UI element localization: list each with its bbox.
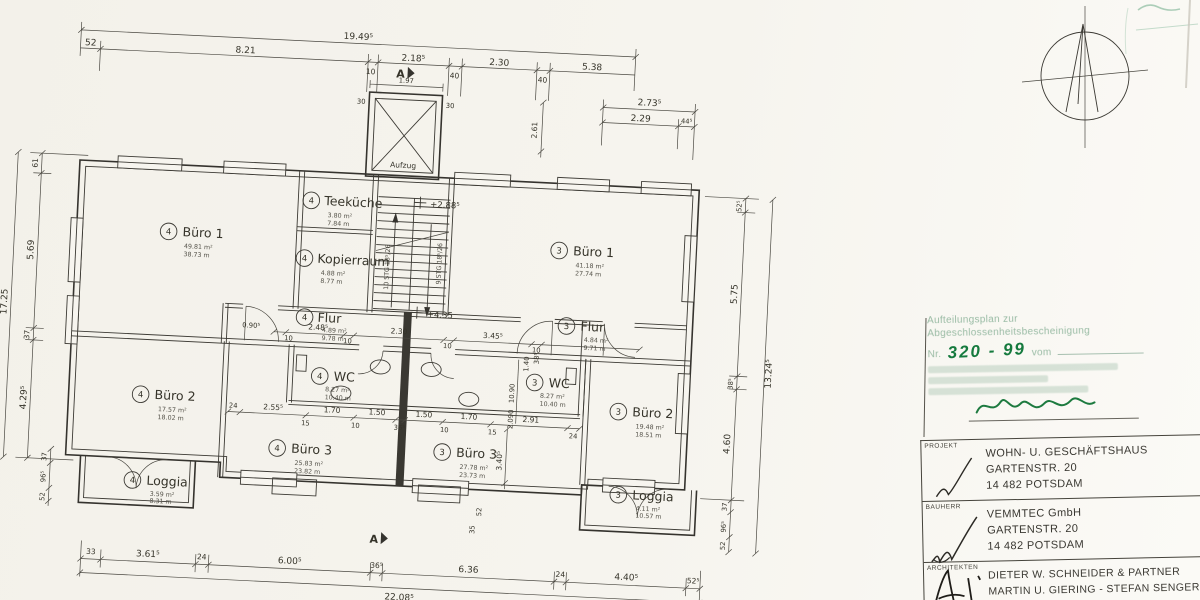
dim-label: 37 <box>22 329 31 339</box>
floor-plan: 1.97 30 30 Aufzug <box>0 16 790 600</box>
room-label-buero2-left: 4 Büro 2 17.57 m² 18.02 m <box>131 386 196 423</box>
bauherr-line: 14 482 POTSDAM <box>987 534 1200 555</box>
room-unit: 4 <box>129 476 135 486</box>
dim-label: 2.91 <box>522 415 539 425</box>
dim-chain-top-right: 2.73⁵ 2.29 44⁵ 2.61 <box>529 93 699 165</box>
dim-label: 36⁵ <box>393 424 405 433</box>
dim-label: 37 <box>721 502 729 511</box>
title-block-projekt: PROJEKT WOHN- U. GESCHÄFTSHAUS GARTENSTR… <box>921 435 1200 502</box>
title-block: PROJEKT WOHN- U. GESCHÄFTSHAUS GARTENSTR… <box>920 434 1200 600</box>
stamp-signature <box>970 390 1101 422</box>
title-block-frame <box>924 318 926 437</box>
dim-label: 52 <box>475 507 483 516</box>
dim-label: 5.75 <box>730 284 741 305</box>
room-name: WC <box>548 375 570 391</box>
room-unit: 3 <box>439 448 445 458</box>
title-block-bauherr: BAUHERR VEMMTEC GmbH GARTENSTR. 20 14 48… <box>923 496 1200 563</box>
dim-label: 4.40⁵ <box>614 573 638 584</box>
room-perimeter: 23.82 m <box>294 468 320 476</box>
stamp-date-line <box>1057 343 1143 355</box>
dim-label: 15 <box>488 428 497 436</box>
room-name: Büro 3 <box>291 441 333 458</box>
section-label: A <box>369 533 379 546</box>
dim-label: 38⁵ <box>727 378 736 390</box>
room-label-buero1-left: 4 Büro 1 49.81 m² 38.73 m <box>159 223 224 260</box>
room-name: Büro 2 <box>154 387 196 404</box>
dim-label: 10 <box>440 426 449 434</box>
stamp-faded-line <box>928 363 1118 373</box>
room-label-buero3-left: 4 Büro 3 25.83 m² 23.82 m <box>268 439 333 476</box>
dim-label: 5.69 <box>26 239 37 260</box>
dim-label: 19.49⁵ <box>343 32 373 43</box>
room-unit: 4 <box>274 444 280 454</box>
dim-label: 52 <box>38 492 46 501</box>
dim-label: 96⁵ <box>39 470 48 482</box>
title-block-architekten: ARCHITEKTEN DIETER W. SCHNEIDER & PARTNE… <box>924 557 1200 600</box>
room-label-wc-right: 3 WC 8.27 m² 10.40 m <box>525 374 570 409</box>
room-unit: 3 <box>532 378 538 388</box>
room-unit: 3 <box>556 246 562 256</box>
room-name: Büro 2 <box>632 404 674 421</box>
dim-label: 1.70 <box>324 405 341 415</box>
dim-label: 3.45⁵ <box>483 331 503 341</box>
room-area: 4.84 m² <box>584 337 609 345</box>
projekt-signature <box>926 454 981 499</box>
elevator-shaft: 1.97 30 30 Aufzug <box>353 74 455 180</box>
level-label: +2.88⁵ <box>430 200 460 211</box>
dim-label: 24 <box>229 402 238 410</box>
dim-label: 24 <box>569 432 578 440</box>
dim-label: 4.60 <box>722 433 733 454</box>
room-label-buero2-right: 3 Büro 2 19.48 m² 18.51 m <box>609 403 674 440</box>
room-perimeter: 8.77 m <box>320 278 342 286</box>
projekt-label: PROJEKT <box>924 442 958 450</box>
room-perimeter: 18.02 m <box>157 414 183 422</box>
room-unit: 4 <box>166 227 172 237</box>
dim-chain-bottom: 33 3.61⁵ 24 6.00⁵ 36⁵ 6.36 24 4.40⁵ 52⁵ … <box>76 540 704 600</box>
dim-label: 33 <box>86 547 96 556</box>
elevator-label: Aufzug <box>390 160 417 170</box>
north-arrow-icon <box>1022 6 1148 148</box>
dim-label: 30 <box>446 102 455 110</box>
bauherr-signature <box>927 515 982 564</box>
dim-label: 2.18⁵ <box>401 54 425 65</box>
room-perimeter: 9.78 m <box>321 335 343 343</box>
architekten-signature <box>928 568 987 600</box>
dim-label: 5.38 <box>582 62 603 73</box>
dim-label: 44⁵ <box>681 117 693 126</box>
stamp-number: 320 - 99 <box>947 339 1026 363</box>
room-name: Loggia <box>632 487 674 504</box>
room-perimeter: 10.40 m <box>325 394 351 402</box>
room-perimeter: 10.40 m <box>539 401 565 409</box>
room-unit: 4 <box>317 372 323 382</box>
dim-label: 2.55⁵ <box>263 402 283 412</box>
room-area: 4.88 m² <box>321 270 346 278</box>
dim-label: 10 <box>443 342 452 350</box>
room-perimeter: 7.84 m <box>327 220 349 228</box>
dim-label: 40 <box>537 75 547 84</box>
dim-label: 52⁵ <box>735 200 744 212</box>
dim-label: 6.00⁵ <box>278 556 302 567</box>
stamp-nr-label: Nr. <box>928 348 942 361</box>
room-area: 27.78 m² <box>459 464 488 472</box>
dim-label: 2.30 <box>489 58 510 69</box>
dim-label: 2.090 <box>506 409 515 429</box>
dim-label: 2.30 <box>390 326 407 336</box>
dim-label: 40 <box>450 71 460 80</box>
room-name: Büro 1 <box>182 224 224 241</box>
dim-label: 38⁵ <box>533 352 542 364</box>
room-perimeter: 18.51 m <box>635 431 661 439</box>
dim-label: 17.25 <box>0 288 11 314</box>
room-perimeter: 9.71 m <box>583 345 605 353</box>
dim-label: 52⁵ <box>687 576 700 586</box>
section-marker-bottom: A <box>369 532 388 547</box>
scanned-floor-plan-sheet: 1.97 30 30 Aufzug <box>0 0 1200 600</box>
dim-label: 30 <box>357 97 366 105</box>
dim-label: 2.29 <box>630 114 651 125</box>
room-area: 3.80 m² <box>327 212 352 220</box>
room-label-buero1-right: 3 Büro 1 41.18 m² 27.74 m <box>550 242 615 279</box>
dim-label: 36⁵ <box>370 561 383 571</box>
dim-label: 35 <box>468 525 476 534</box>
dim-label: 2.48⁵ <box>308 322 328 332</box>
room-unit: 3 <box>563 322 569 332</box>
room-name: Büro 3 <box>456 445 498 462</box>
room-area: 8.27 m² <box>325 386 350 394</box>
dim-label: 1.50 <box>415 410 432 420</box>
room-label-loggia-left: 4 Loggia 3.59 m² 8.31 m <box>123 471 188 506</box>
dim-label: 2.61 <box>530 121 540 138</box>
room-label-wc-left: 4 WC 8.27 m² 10.40 m <box>310 367 355 402</box>
dim-label: 6.36 <box>458 565 479 576</box>
dim-label: 8.21 <box>235 45 256 56</box>
dim-label: 10 <box>284 334 293 342</box>
dim-label: 52 <box>719 541 727 550</box>
dim-chain-right: 52⁵ 5.75 38⁵ 4.60 37 96⁵ 52 13.24⁵ <box>688 194 783 557</box>
stamp-faded-line <box>928 375 1048 384</box>
room-label-buero3-right: 3 Büro 3 27.78 m² 23.73 m <box>433 443 498 480</box>
room-perimeter: 38.73 m <box>183 251 209 259</box>
room-perimeter: 10.57 m <box>635 513 661 521</box>
architekten-line: MARTIN U. GIERING - STEFAN SENGER <box>988 579 1200 600</box>
stair-label: 9 STG 18⁵/26 <box>435 243 444 285</box>
dim-label: 37 <box>40 452 48 461</box>
dim-label: 10.90 <box>508 383 517 403</box>
dim-label: 2.73⁵ <box>637 98 661 109</box>
room-area: 19.48 m² <box>635 423 664 431</box>
projekt-line: 14 482 POTSDAM <box>986 473 1200 494</box>
room-unit: 3 <box>615 491 621 501</box>
room-area: 17.57 m² <box>158 406 187 414</box>
paper-fold <box>1186 0 1190 88</box>
dim-label: 10 <box>351 422 360 430</box>
dim-label: 10 <box>343 337 352 345</box>
dim-label: 4.29⁵ <box>19 385 30 409</box>
room-area: 25.83 m² <box>294 460 323 468</box>
room-name: Teeküche <box>323 193 383 211</box>
room-name: Loggia <box>146 473 188 490</box>
dim-label: 1.70 <box>460 412 477 422</box>
room-name: Kopierraum <box>317 251 390 270</box>
dim-label: 24 <box>555 570 565 579</box>
section-label: A <box>396 67 406 80</box>
dim-label: 1.40 <box>522 356 531 372</box>
dim-label: 15 <box>301 419 310 427</box>
room-name: Büro 1 <box>573 243 615 260</box>
dim-inner-vertical: 3.40⁵ 10.90 1.40 38⁵ 2.090 52 35 <box>468 350 541 537</box>
room-unit: 4 <box>138 390 144 400</box>
dim-label: 1.50 <box>368 407 385 417</box>
room-area: 41.18 m² <box>575 262 604 270</box>
dim-label: 61 <box>31 158 40 168</box>
dim-label: 96⁵ <box>720 521 729 533</box>
room-unit: 4 <box>308 196 314 206</box>
room-unit: 3 <box>615 407 621 417</box>
stamp-vom-label: vom <box>1032 346 1052 359</box>
bauherr-label: BAUHERR <box>926 503 961 511</box>
dim-label: 13.24⁵ <box>764 359 775 389</box>
room-name: Flur <box>580 319 605 335</box>
dim-label: 0.90⁵ <box>242 321 261 330</box>
room-perimeter: 23.73 m <box>459 472 485 480</box>
room-perimeter: 8.31 m <box>149 498 171 506</box>
room-area: 8.27 m² <box>540 393 565 401</box>
room-perimeter: 27.74 m <box>575 270 601 278</box>
dim-chain-top: 19.49⁵ 52 8.21 10 2.18⁵ 40 2.30 40 5.38 <box>76 19 639 105</box>
dim-label: 22.08⁵ <box>384 592 414 600</box>
room-name: WC <box>333 369 355 385</box>
dim-label: 10 <box>366 67 376 76</box>
dim-label: 52 <box>85 38 97 49</box>
room-unit: 4 <box>302 313 308 323</box>
room-unit: 4 <box>301 254 307 264</box>
room-area: 49.81 m² <box>184 243 213 251</box>
level-label: +4.35 <box>427 310 454 321</box>
approval-stamp: Aufteilungsplan zur Abgeschlossenheitsbe… <box>927 310 1189 437</box>
dim-label: 3.40⁵ <box>494 451 504 471</box>
dim-label: 3.61⁵ <box>136 549 160 560</box>
dim-label: 24 <box>197 552 207 561</box>
